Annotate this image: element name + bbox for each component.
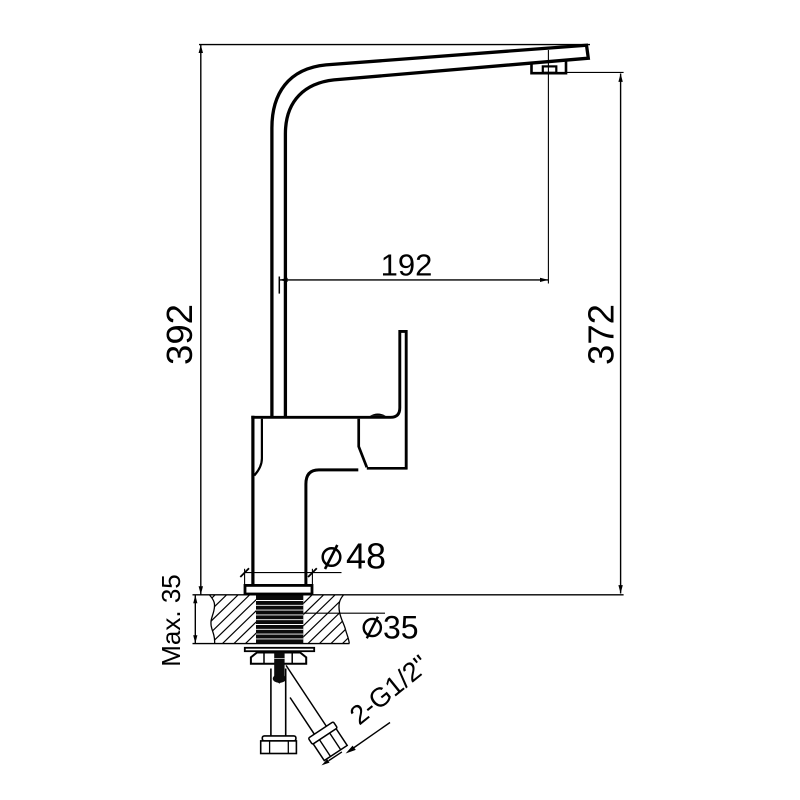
svg-text:Max. 35: Max. 35 (156, 574, 186, 667)
svg-text:392: 392 (159, 304, 200, 365)
svg-text:192: 192 (381, 248, 433, 283)
svg-text:48: 48 (346, 536, 386, 577)
svg-text:372: 372 (581, 304, 622, 365)
svg-text:35: 35 (383, 610, 419, 646)
